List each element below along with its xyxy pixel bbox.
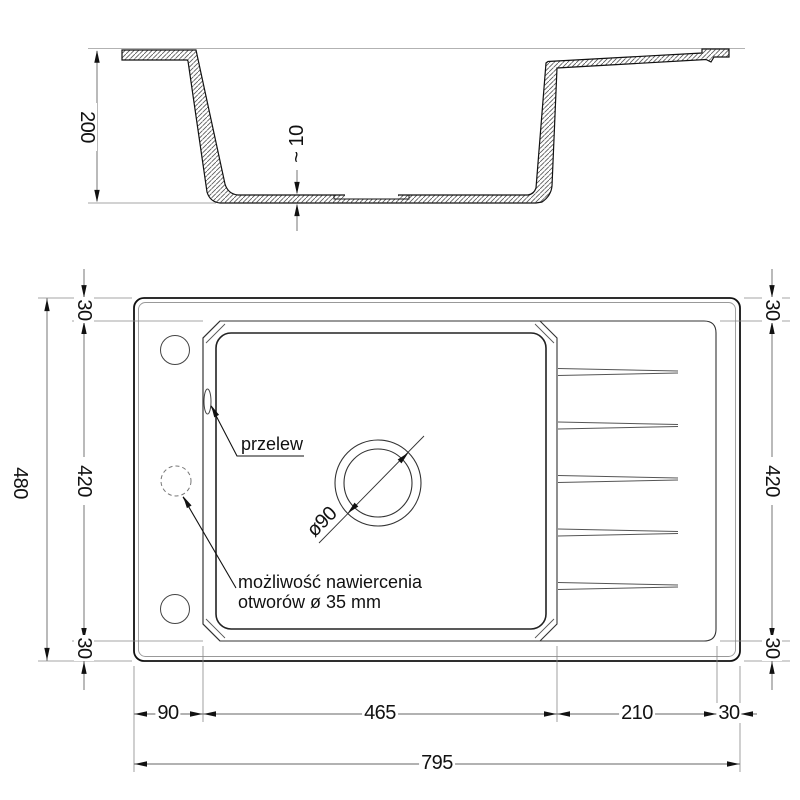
sink-profile-hatched xyxy=(122,49,729,203)
dim-bowl-width: 465 xyxy=(362,703,398,723)
plan-view xyxy=(38,269,790,772)
overflow-label: przelew xyxy=(241,434,303,454)
drill-note-line2: otworów ø 35 mm xyxy=(238,592,381,612)
sink-technical-drawing: 200 ~ 10 480 30 420 30 30 420 30 90 465 … xyxy=(0,0,800,800)
dim-left-bowl-height: 420 xyxy=(74,457,94,505)
dim-left-top-margin: 30 xyxy=(74,297,94,323)
dim-right-bottom-margin: 30 xyxy=(762,635,782,661)
drawing-svg xyxy=(0,0,800,800)
dim-section-height: 200 xyxy=(77,103,97,151)
cross-section-view xyxy=(88,49,745,231)
sink-outline xyxy=(134,298,740,661)
dim-right-top-margin: 30 xyxy=(762,297,782,323)
dim-bottom-right-margin: 30 xyxy=(716,703,741,723)
overflow-slot xyxy=(204,389,211,414)
dim-right-drainer-height: 420 xyxy=(762,457,782,505)
drill-note-line1: możliwość nawiercenia xyxy=(238,572,422,592)
dim-total-width: 795 xyxy=(419,753,455,773)
dim-overall-height: 480 xyxy=(10,459,30,507)
dim-bottom-thickness: ~ 10 xyxy=(287,120,307,168)
dim-bottom-left-margin: 90 xyxy=(155,703,180,723)
drain-recess-gap xyxy=(345,194,398,199)
dim-drainer-width: 210 xyxy=(619,703,655,723)
dim-left-bottom-margin: 30 xyxy=(74,635,94,661)
